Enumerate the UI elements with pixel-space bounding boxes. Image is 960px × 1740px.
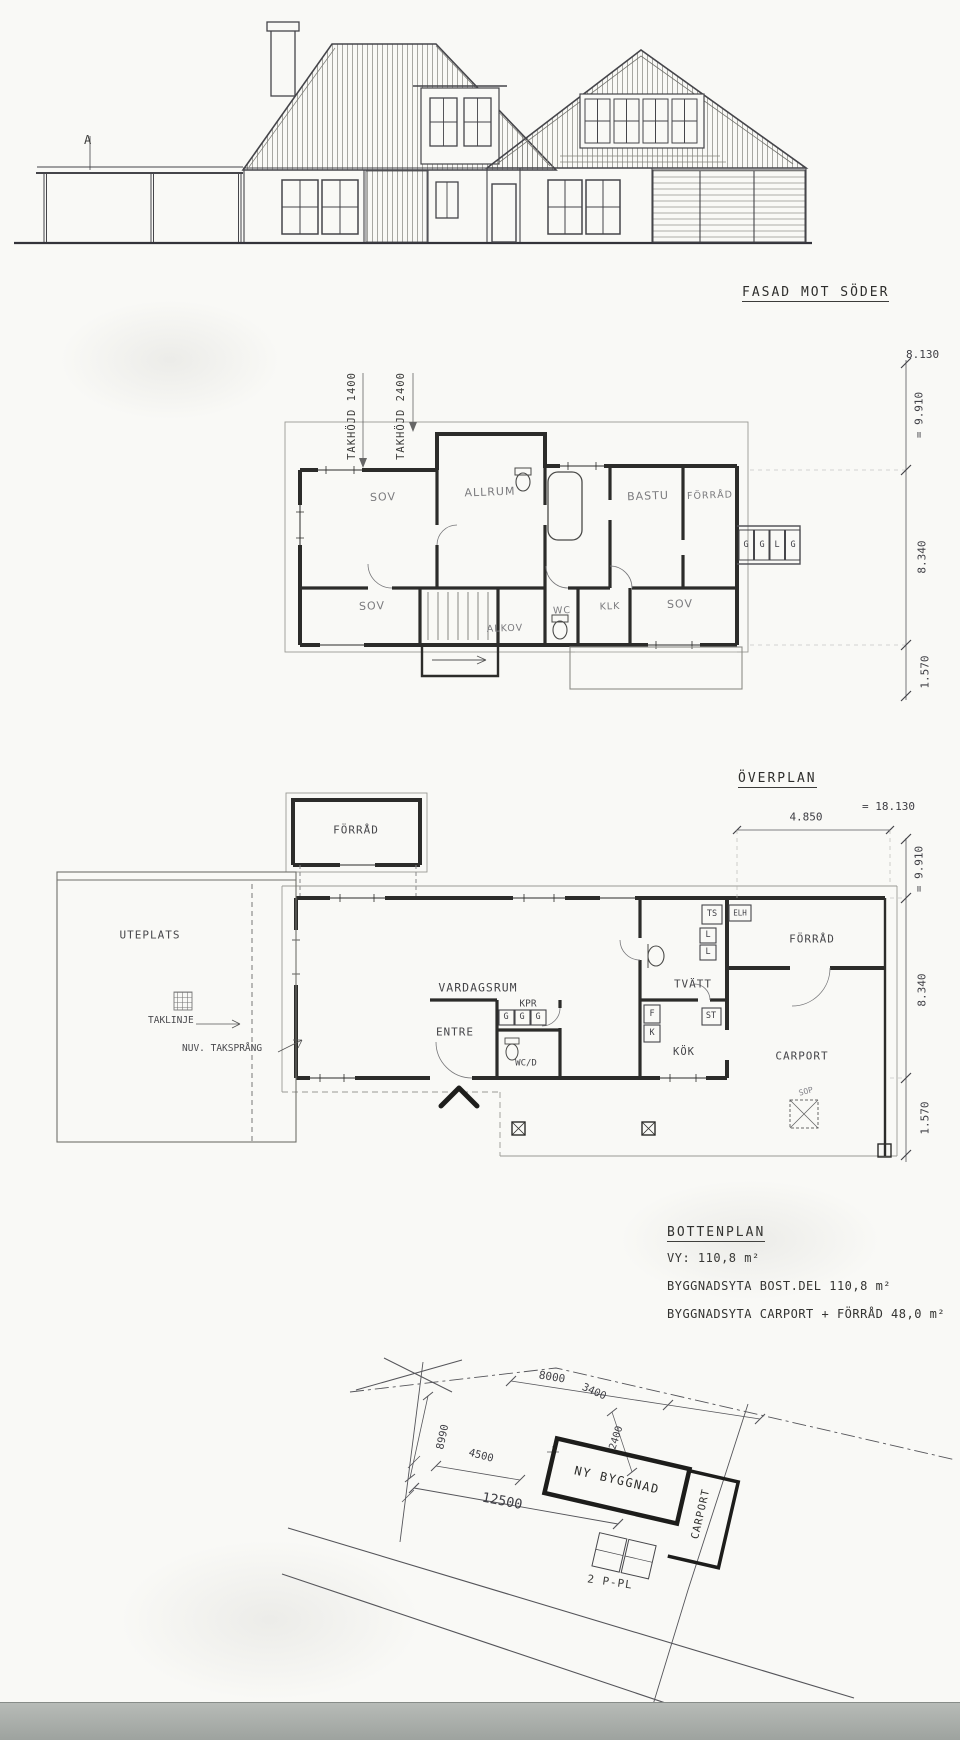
dim-8340-lower: 8.340 [917,973,928,1006]
unit-g3: G [535,1013,540,1022]
unit-l2: L [705,948,710,957]
unit-k: K [649,1029,654,1038]
room-label-carport: CARPORT [775,1051,828,1062]
closet-letter-g2: G [759,541,764,550]
overplan-title: ÖVERPLAN [738,772,817,788]
ceiling-height-2400-label: TAKHÖJD 2400 [396,372,407,460]
room-label-alkov: ALKOV [487,624,524,635]
section-marker-a: A [84,134,91,146]
closet-letter-g3: G [790,541,795,550]
dim-8340-upper: 8.340 [917,540,928,573]
room-label-wcd: WC/D [515,1060,537,1069]
room-label-wc-upper: WC [553,606,571,616]
room-label-kpr: KPR [519,999,536,1009]
room-label-allrum: ALLRUM [464,486,515,499]
room-label-sov-lower-left: SOV [359,600,385,612]
siteplan-drawing [282,1358,956,1720]
scanned-blueprint-page: A FASAD MOT SÖDER TAKHÖJD 1400 TAKHÖJD 2… [0,0,960,1740]
room-label-forrad-upper: FÖRRÅD [687,490,733,501]
unit-l1: L [705,931,710,940]
dim-9910-upper: = 9.910 [914,392,925,438]
closet-letter-g1: G [743,541,748,550]
bottenplan-drawing [57,793,911,1162]
stat-byggnadsyta-carport: BYGGNADSYTA CARPORT + FÖRRÅD 48,0 m² [667,1308,945,1320]
room-label-entre: ENTRE [436,1027,474,1038]
bottenplan-title: BOTTENPLAN [667,1226,765,1242]
annotation-taklinje: TAKLINJE [148,1016,194,1026]
room-label-uteplats: UTEPLATS [120,930,181,941]
unit-ts: TS [707,910,717,919]
room-label-forrad-outbuilding: FÖRRÅD [333,825,379,836]
dim-9910-lower: = 9.910 [914,846,925,892]
room-label-bastu: BASTU [627,490,669,502]
scanner-edge-band [0,1702,960,1740]
room-label-kok: KÖK [673,1047,695,1058]
unit-st: ST [706,1012,716,1021]
room-label-vardagsrum: VARDAGSRUM [438,982,517,994]
dim-1570-lower: 1.570 [920,1101,931,1134]
stat-byggnadsyta-bostad: BYGGNADSYTA BOST.DEL 110,8 m² [667,1280,891,1292]
dim-4850: 4.850 [789,812,822,823]
elevation-title: FASAD MOT SÖDER [742,286,889,302]
unit-f: F [649,1010,654,1019]
ceiling-height-1400-label: TAKHÖJD 1400 [347,372,358,460]
stat-vy: VY: 110,8 m² [667,1252,760,1264]
closet-letter-l: L [774,541,779,550]
room-label-forrad-right: FÖRRÅD [789,934,835,945]
unit-g1: G [503,1013,508,1022]
unit-elh: ELH [733,909,747,917]
overplan-drawing [285,358,911,701]
room-label-tvatt: TVÄTT [674,979,712,990]
elevation-drawing [14,22,812,243]
dim-18130: = 18.130 [862,801,915,812]
dim-8130: 8.130 [906,349,939,360]
unit-g2: G [519,1013,524,1022]
dim-1570-upper: 1.570 [920,655,931,688]
room-label-sov-upper: SOV [370,491,396,503]
annotation-taksprang: NUV. TAKSPRÅNG [182,1044,262,1054]
room-label-klk: KLK [599,602,620,612]
room-label-sov-lower-right: SOV [667,598,693,610]
blueprint-linework [0,0,960,1740]
